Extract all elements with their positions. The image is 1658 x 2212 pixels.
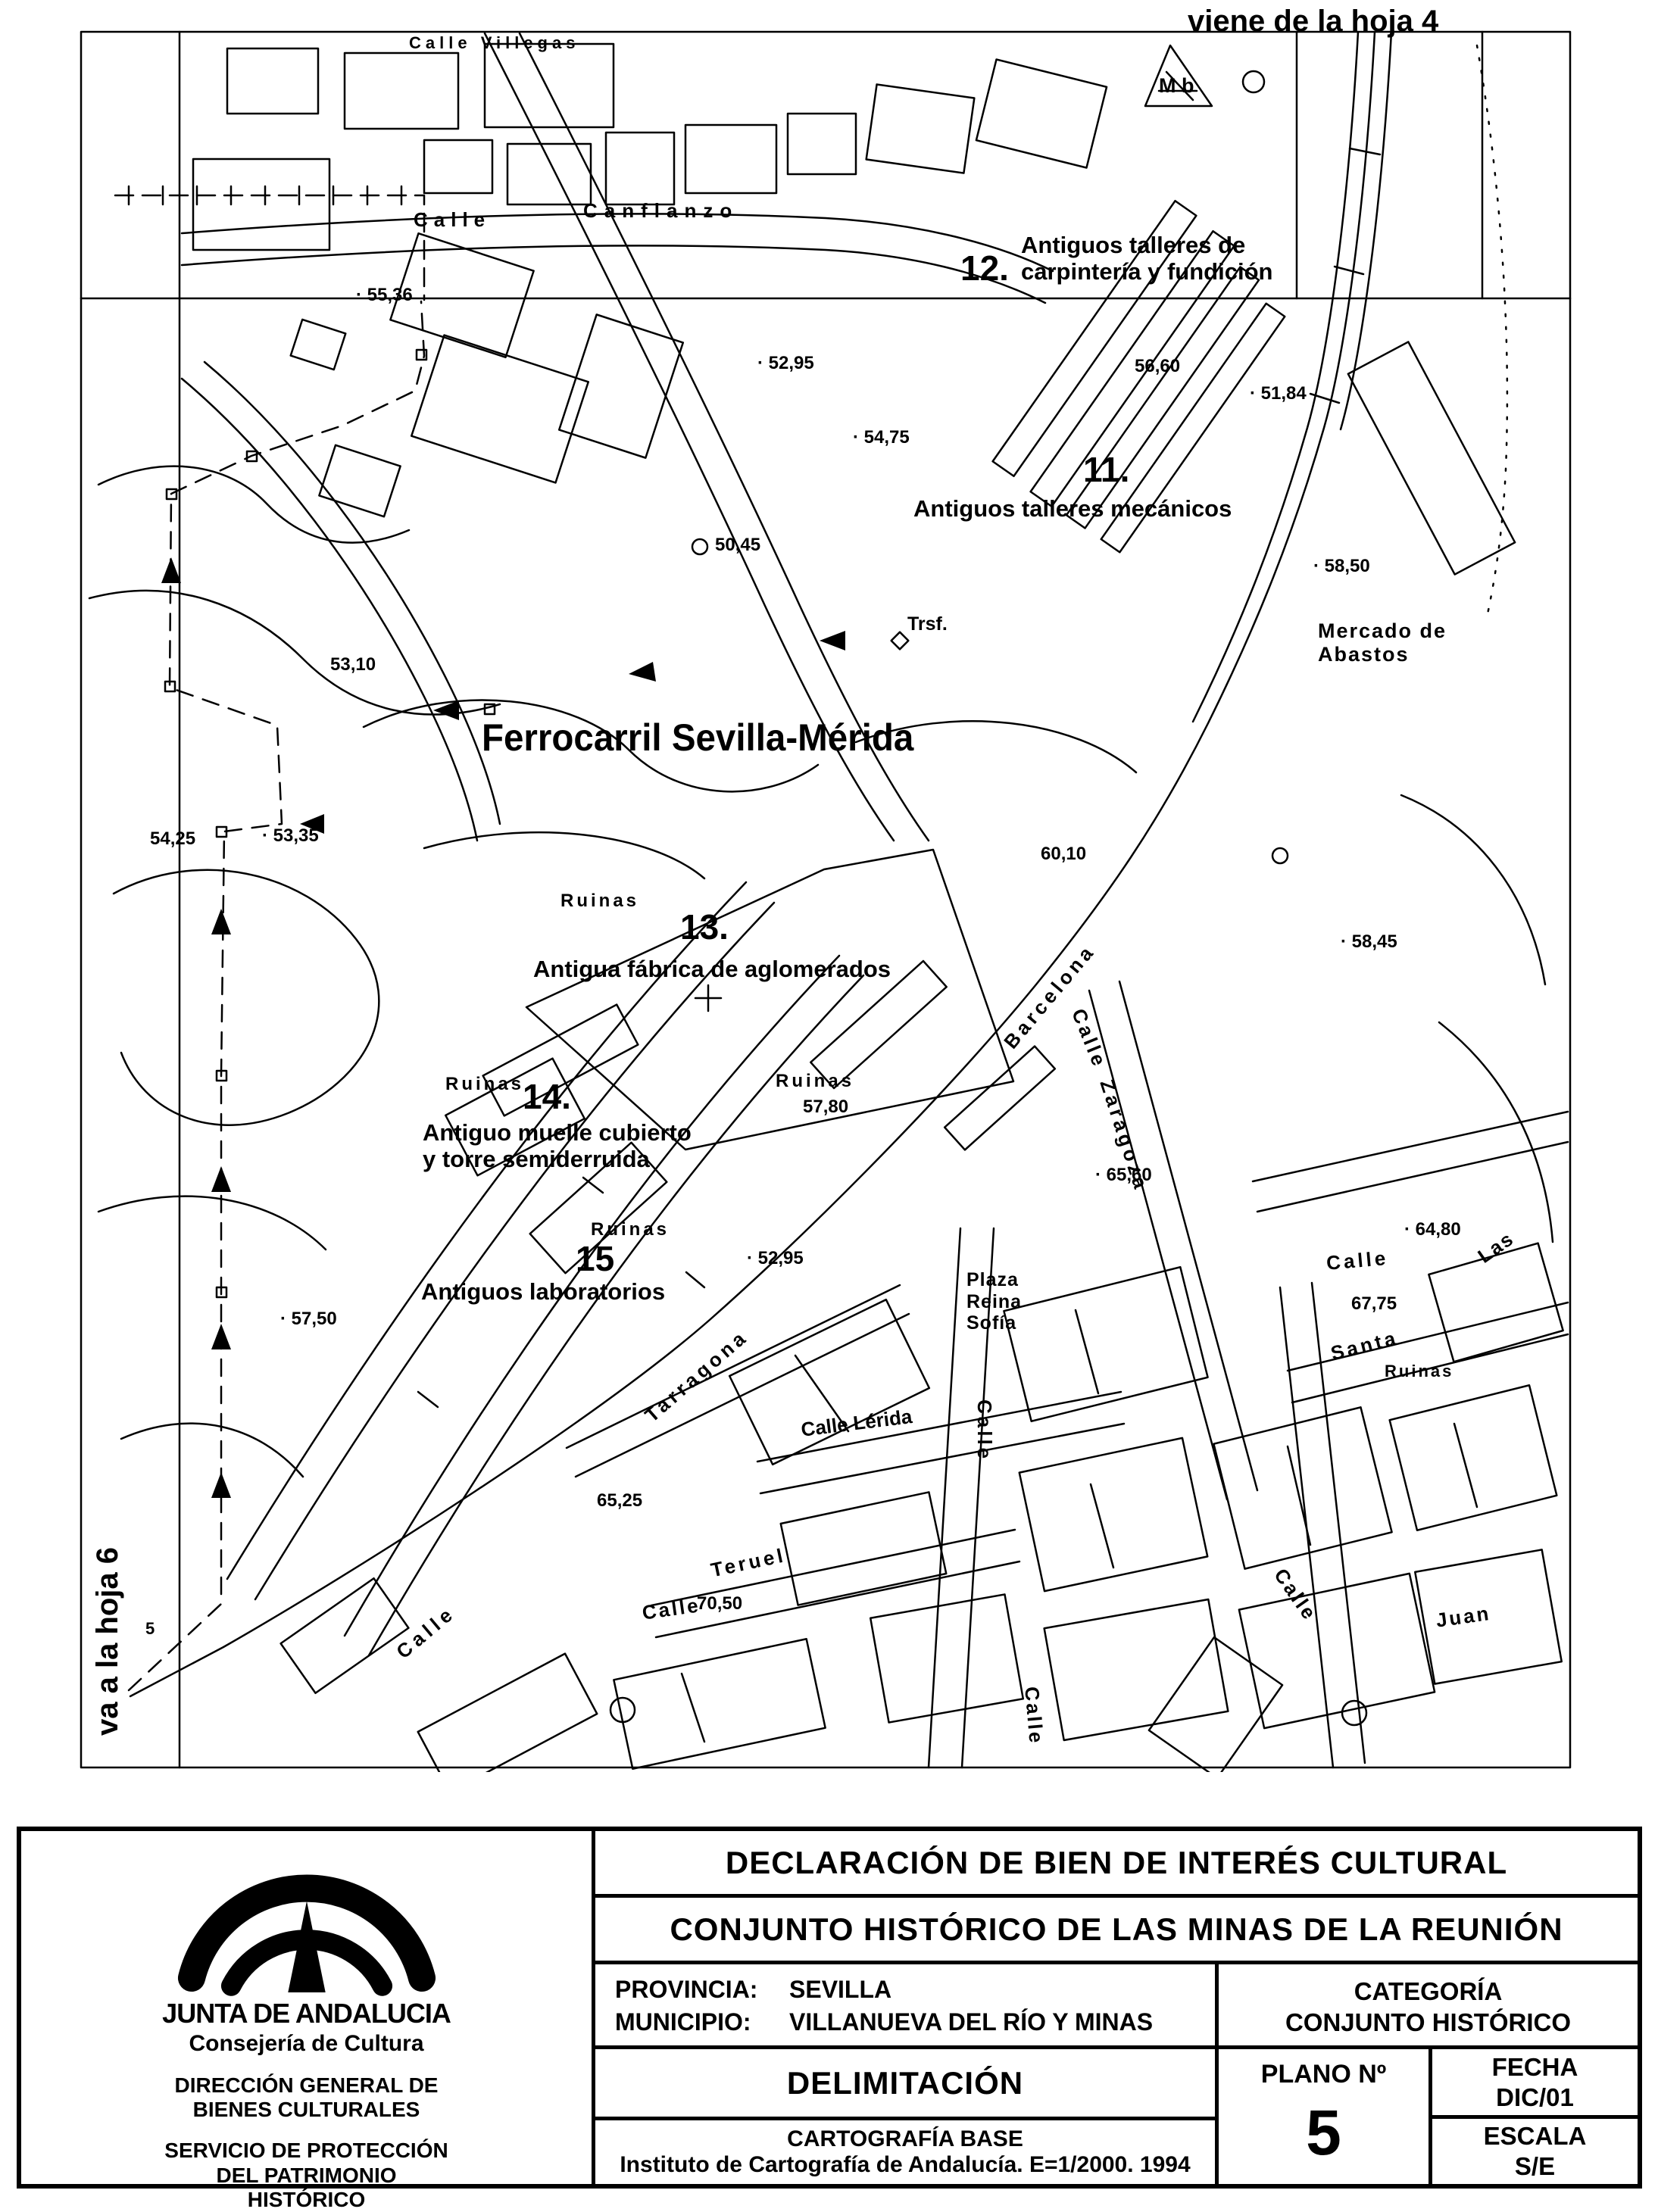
map-label-elevation: 57,80 (803, 1097, 848, 1117)
ensemble-subtitle: CONJUNTO HISTÓRICO DE LAS MINAS DE LA RE… (595, 1898, 1638, 1964)
municipio-value: VILLANUEVA DEL RÍO Y MINAS (789, 2006, 1153, 2039)
map-label-elevation: 70,50 (697, 1593, 742, 1614)
map-label-railway-name: Ferrocarril Sevilla-Mérida (482, 716, 913, 760)
map-label-elevation: 54,25 (150, 828, 195, 849)
map-canvas: viene de la hoja 4va a la hoja 6Ferrocar… (0, 0, 1658, 1772)
cartografia-cell: CARTOGRAFÍA BASE Instituto de Cartografí… (595, 2120, 1215, 2184)
province-municipality-cell: PROVINCIA: SEVILLA MUNICIPIO: VILLANUEVA… (595, 1964, 1215, 2049)
plano-cell: PLANO Nº 5 (1215, 2049, 1429, 2184)
map-label-street: Calle (1325, 1247, 1389, 1275)
map-label-elevation: 67,75 (1351, 1293, 1397, 1314)
map-label-street: Calle Lérida (800, 1406, 913, 1441)
map-label-site-name: Antiguo muelle cubierto y torre semiderr… (423, 1119, 692, 1173)
municipio-label: MUNICIPIO: (615, 2006, 789, 2039)
map-label-ruins: Ruinas (776, 1071, 854, 1091)
scanned-map-sheet: viene de la hoja 4va a la hoja 6Ferrocar… (0, 0, 1658, 2198)
map-label-site-name: Antiguos talleres de carpintería y fundi… (1021, 232, 1272, 285)
map-label-ruins: Ruinas (1385, 1362, 1453, 1381)
plano-label: PLANO Nº (1219, 2060, 1429, 2089)
map-label-edge: viene de la hoja 4 (1188, 5, 1438, 39)
map-label-street: Canflanzo (583, 200, 738, 223)
org-name: JUNTA DE ANDALUCIA (21, 1998, 592, 2029)
map-label-elevation: · 65,60 (1095, 1165, 1152, 1185)
map-label-elevation: · 57,50 (280, 1309, 337, 1329)
title-block-org-cell: JUNTA DE ANDALUCIA Consejería de Cultura… (21, 1831, 595, 2184)
declaration-title: DECLARACIÓN DE BIEN DE INTERÉS CULTURAL (595, 1831, 1638, 1898)
provincia-label: PROVINCIA: (615, 1973, 789, 2006)
map-label-elevation: 5 (145, 1619, 155, 1638)
map-label-street: Calle (1067, 1006, 1111, 1072)
map-label-elevation: 50,45 (715, 535, 760, 555)
map-label-site-name: Antiguos laboratorios (421, 1278, 665, 1305)
map-label-elevation: · 55,36 (356, 285, 413, 305)
categoria-cell: CATEGORÍA CONJUNTO HISTÓRICO (1215, 1964, 1638, 2049)
escala-value: S/E (1515, 2151, 1555, 2182)
cartografia-line1: CARTOGRAFÍA BASE (787, 2126, 1023, 2153)
title-block: JUNTA DE ANDALUCIA Consejería de Cultura… (17, 1827, 1642, 2189)
map-label-edge: va a la hoja 6 (91, 1547, 126, 1736)
cartografia-line2: Instituto de Cartografía de Andalucía. E… (620, 2152, 1190, 2179)
map-label-elevation: 65,25 (597, 1490, 642, 1511)
map-label-site-name: Antigua fábrica de aglomerados (533, 956, 891, 982)
junta-de-andalucia-logo (163, 1845, 451, 1996)
map-label-ruins: Ruinas (560, 891, 639, 911)
map-label-site-number: 12. (960, 248, 1009, 288)
map-label-street: Teruel (709, 1544, 788, 1582)
map-label-elevation: · 54,75 (853, 427, 910, 448)
map-label-street: Las (1474, 1228, 1519, 1268)
map-label-site-number: 13. (680, 907, 729, 947)
map-label-ruins: Ruinas (445, 1074, 524, 1094)
map-label-elevation: · 51,84 (1250, 383, 1307, 404)
map-label-street: Santa (1329, 1327, 1400, 1365)
delimitacion-cell: DELIMITACIÓN (595, 2049, 1215, 2120)
map-label-poi: Plaza Reina Sofía (966, 1269, 1022, 1334)
map-label-street: Calle (414, 209, 491, 232)
org-subname: Consejería de Cultura (21, 2031, 592, 2057)
org-department-2: SERVICIO DE PROTECCIÓN DEL PATRIMONIO HI… (21, 2139, 592, 2212)
map-label-site-name: Antiguos talleres mecánicos (913, 495, 1232, 522)
map-labels-layer: viene de la hoja 4va a la hoja 6Ferrocar… (0, 0, 1658, 1772)
map-label-street: Calle (1019, 1686, 1047, 1746)
map-label-elevation: · 58,45 (1341, 931, 1397, 952)
plano-number: 5 (1219, 2096, 1429, 2170)
map-label-elevation: · 52,95 (747, 1248, 804, 1268)
map-label-street: Calle (392, 1602, 461, 1664)
map-label-poi: Mercado de Abastos (1318, 619, 1447, 666)
provincia-value: SEVILLA (789, 1973, 891, 2006)
map-label-elevation: · 58,50 (1313, 556, 1370, 576)
map-label-elevation: 60,10 (1041, 844, 1086, 864)
map-label-street: Calle (1269, 1565, 1322, 1625)
fecha-value: DIC/01 (1496, 2083, 1574, 2113)
map-label-elevation: 56,60 (1135, 356, 1180, 376)
map-label-site-number: 15 (576, 1239, 614, 1278)
fecha-label: FECHA (1492, 2052, 1578, 2083)
fecha-cell: FECHA DIC/01 (1429, 2049, 1638, 2119)
map-label-street: Calle (641, 1594, 702, 1624)
escala-label: ESCALA (1484, 2121, 1587, 2151)
map-label-elevation: · 64,80 (1404, 1219, 1461, 1240)
map-label-site-number: 11. (1083, 450, 1129, 489)
map-label-street: Calle (973, 1399, 995, 1462)
map-label-elevation: · 52,95 (757, 353, 814, 373)
map-label-poi: Trsf. (907, 613, 948, 635)
map-label-street: Tarragona (641, 1325, 753, 1427)
map-label-ruins: Ruinas (591, 1219, 670, 1240)
province-municipality-row: PROVINCIA: SEVILLA MUNICIPIO: VILLANUEVA… (595, 1964, 1638, 2049)
map-label-site-number: 14. (523, 1077, 571, 1116)
categoria-label: CATEGORÍA (1354, 1976, 1503, 2007)
categoria-value: CONJUNTO HISTÓRICO (1285, 2007, 1571, 2038)
map-label-street: Calle Villegas (409, 33, 579, 52)
org-department-1: DIRECCIÓN GENERAL DE BIENES CULTURALES (21, 2073, 592, 2122)
map-label-poi: M b (1159, 74, 1194, 98)
map-label-elevation: · 53,35 (262, 825, 319, 846)
map-label-street: Juan (1435, 1602, 1492, 1632)
escala-cell: ESCALA S/E (1429, 2119, 1638, 2184)
map-label-elevation: 53,10 (330, 654, 376, 675)
